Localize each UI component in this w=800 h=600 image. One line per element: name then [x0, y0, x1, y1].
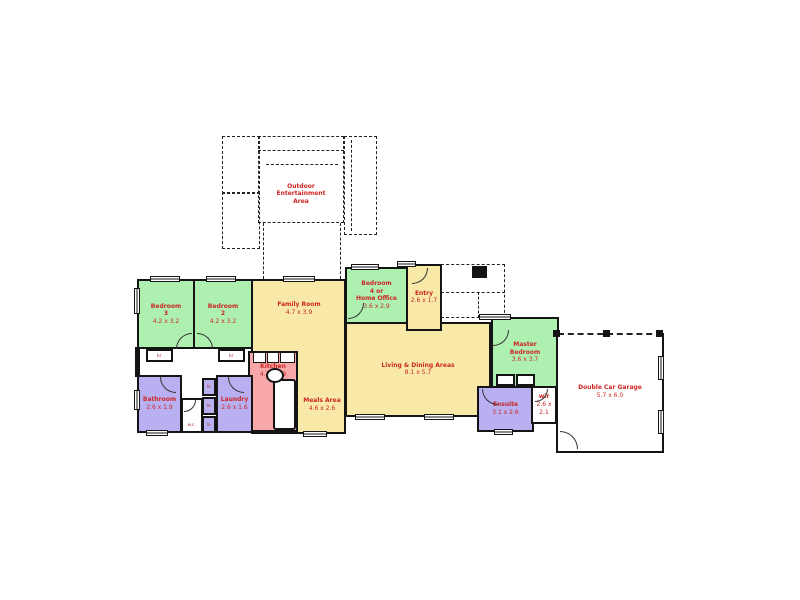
outdoor-dashed-connector — [340, 223, 341, 279]
window-marker — [479, 314, 511, 320]
kitchen-bench-fixture — [253, 352, 266, 363]
window-marker — [351, 264, 379, 270]
kitchen-sink-fixture — [266, 368, 284, 383]
linen-closet: ln — [202, 378, 216, 396]
robe-closet: br — [218, 349, 245, 362]
label-outdoor-area: Outdoor Entertainment Area — [259, 176, 343, 212]
label-family-room: Family Room 4.7 x 3.9 — [256, 296, 342, 322]
window-marker — [303, 431, 327, 437]
window-marker — [134, 390, 140, 410]
room-living-dining: Living & Dining Areas 8.1 x 5.7 — [345, 322, 491, 417]
linen-closet: ln — [202, 416, 216, 433]
outdoor-dashed-left-top — [222, 136, 260, 194]
floor-plan-canvas: Outdoor Entertainment Area Family Room 4… — [0, 0, 800, 600]
porch-pillar — [472, 266, 487, 278]
garage-dashed-front-line — [558, 333, 662, 335]
linen-closet: ln — [202, 397, 216, 415]
window-marker — [206, 276, 236, 282]
master-robe-fixture — [516, 374, 535, 386]
kitchen-bench-fixture — [280, 352, 295, 363]
porch-dashed-inner-line — [441, 292, 505, 293]
window-marker — [150, 276, 180, 282]
robe-closet: br — [146, 349, 173, 362]
kitchen-island-fixture — [273, 379, 296, 430]
outdoor-dashed-inner-line — [266, 164, 338, 165]
window-marker — [658, 356, 664, 380]
window-marker — [134, 288, 140, 314]
garage-line-marker — [603, 330, 610, 337]
outdoor-dashed-inner-line — [351, 140, 352, 231]
window-marker — [397, 261, 416, 267]
outdoor-dashed-connector — [263, 223, 264, 279]
master-robe-fixture — [496, 374, 515, 386]
garage-line-marker — [553, 330, 560, 337]
kitchen-bench-fixture — [267, 352, 279, 363]
garage-line-marker — [656, 330, 663, 337]
window-marker — [658, 410, 664, 434]
window-marker — [283, 276, 315, 282]
outdoor-dashed-inner-line — [258, 150, 344, 151]
hallway-wall-segment — [135, 347, 140, 377]
outdoor-dashed-right — [344, 136, 377, 235]
window-marker — [494, 429, 513, 435]
outdoor-dashed-left-bottom — [222, 192, 260, 249]
window-marker — [355, 414, 385, 420]
window-marker — [146, 430, 168, 436]
window-marker — [424, 414, 454, 420]
